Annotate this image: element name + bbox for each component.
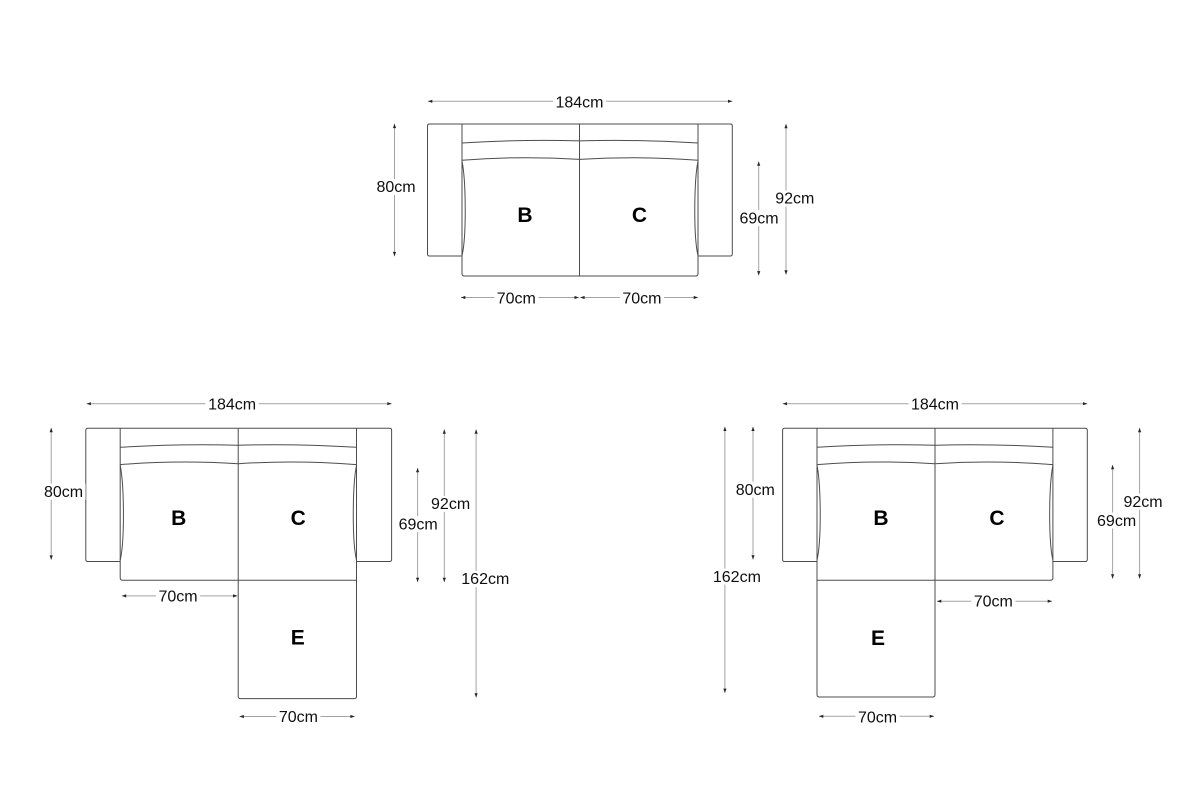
- svg-text:B: B: [517, 204, 532, 227]
- svg-text:E: E: [291, 627, 305, 650]
- svg-text:70cm: 70cm: [279, 709, 318, 726]
- svg-text:70cm: 70cm: [858, 710, 897, 727]
- svg-text:69cm: 69cm: [739, 210, 778, 227]
- svg-text:92cm: 92cm: [775, 191, 814, 208]
- svg-text:92cm: 92cm: [431, 496, 470, 513]
- svg-text:B: B: [873, 507, 888, 530]
- svg-text:E: E: [871, 627, 885, 650]
- svg-text:184cm: 184cm: [555, 95, 603, 112]
- svg-text:70cm: 70cm: [974, 594, 1013, 611]
- svg-text:80cm: 80cm: [736, 482, 775, 499]
- svg-text:80cm: 80cm: [376, 179, 415, 196]
- svg-text:80cm: 80cm: [44, 484, 83, 501]
- svg-text:70cm: 70cm: [497, 290, 536, 307]
- svg-text:69cm: 69cm: [1097, 513, 1136, 530]
- svg-text:C: C: [632, 204, 647, 227]
- svg-text:184cm: 184cm: [208, 397, 256, 414]
- svg-text:C: C: [989, 507, 1004, 530]
- svg-text:69cm: 69cm: [399, 516, 438, 533]
- svg-text:70cm: 70cm: [158, 588, 197, 605]
- svg-text:162cm: 162cm: [713, 569, 761, 586]
- svg-text:70cm: 70cm: [622, 290, 661, 307]
- svg-text:B: B: [171, 507, 186, 530]
- svg-text:184cm: 184cm: [911, 397, 959, 414]
- svg-text:92cm: 92cm: [1123, 494, 1162, 511]
- svg-text:C: C: [291, 507, 306, 530]
- svg-text:162cm: 162cm: [461, 571, 509, 588]
